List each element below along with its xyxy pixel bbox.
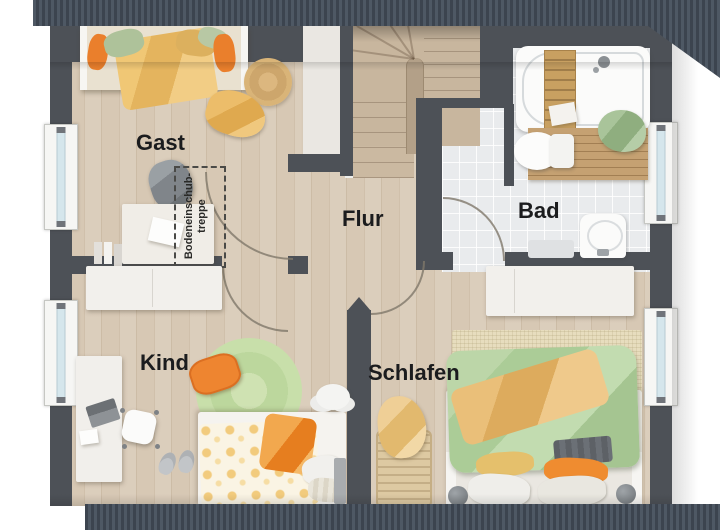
cloud-lamp [316,384,350,410]
window-handle [57,397,66,403]
room-label-bad: Bad [518,198,560,224]
attic-hatch-label-line2: treppe [196,160,209,272]
window-handle [57,127,66,133]
window-handle [657,125,666,131]
floor-plan: Bodeneinschub- treppe [0,0,720,530]
bed-headboard [80,26,87,90]
window-handle [657,397,666,403]
wall-top-bad [513,26,650,48]
attic-hatch-label: Bodeneinschub- treppe [183,160,217,272]
wall-divider-kind-schlafen [347,310,371,506]
attic-hatch-label-line1: Bodeneinschub- [183,160,196,272]
wardrobe-door-line [152,269,153,307]
stairs-left-flight [353,88,414,178]
chair-seat [120,408,158,446]
sink-basin [587,220,623,252]
window-handle [57,221,66,227]
wardrobe-schlafen [486,266,634,316]
window-glass [657,130,666,216]
window-glass [57,132,66,222]
wall-gast-door-stub [288,154,345,172]
chair-caster [120,408,125,413]
wardrobe-door-line [514,269,515,313]
exterior-shadow-right [672,25,698,506]
towel-green [598,110,646,152]
sink-faucet [597,249,609,256]
office-chair [120,408,158,448]
double-bed [446,346,642,506]
window-handle [657,311,666,317]
wall-gast-interior-light [303,26,342,156]
wall-divider-tip [347,297,371,311]
bath-mat-gray [528,240,574,258]
window-glass [57,308,66,398]
wall-flur-bad [416,104,442,270]
roof-band-bottom [85,504,720,530]
wardrobe-kind [86,266,222,310]
room-label-flur: Flur [342,206,384,232]
slipper [156,450,179,477]
desk-paper [79,429,99,445]
window-glass [657,316,666,398]
kid-bed [198,412,346,506]
room-label-gast: Gast [136,130,185,156]
window-handle [657,215,666,221]
eave-shadow-top [50,62,672,70]
stairs-shadow [345,26,480,42]
window-gast [44,124,78,230]
room-label-kind: Kind [140,350,189,376]
room-label-schlafen: Schlafen [368,360,460,386]
books [94,242,102,264]
toilet-tank [550,134,574,168]
sink [580,214,626,258]
wall-shower-right [504,104,514,186]
slipper [177,449,196,475]
slippers [158,450,198,478]
window-handle [57,303,66,309]
window-kind [44,300,78,406]
guest-bed [80,26,248,90]
